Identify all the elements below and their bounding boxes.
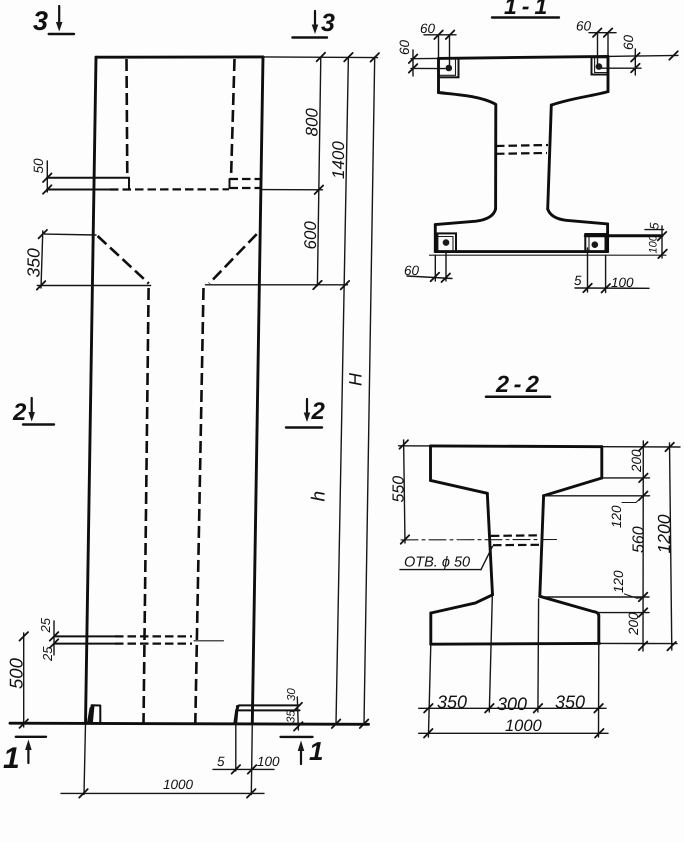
svg-text:1-1: 1-1 xyxy=(504,0,552,19)
svg-text:50: 50 xyxy=(31,158,46,174)
svg-text:35: 35 xyxy=(286,710,298,723)
svg-text:H: H xyxy=(346,372,366,386)
svg-text:5: 5 xyxy=(648,223,662,230)
svg-text:5: 5 xyxy=(574,273,582,288)
svg-text:350: 350 xyxy=(24,248,44,277)
svg-text:h: h xyxy=(309,491,330,502)
svg-text:25: 25 xyxy=(40,646,55,662)
svg-text:120: 120 xyxy=(609,505,624,528)
svg-text:60: 60 xyxy=(397,39,412,55)
svg-text:100: 100 xyxy=(611,275,634,290)
svg-text:1000: 1000 xyxy=(505,717,543,735)
svg-text:2-2: 2-2 xyxy=(495,371,543,397)
svg-text:120: 120 xyxy=(611,570,626,593)
svg-text:560: 560 xyxy=(631,526,648,553)
svg-text:1200: 1200 xyxy=(654,514,674,553)
svg-text:1400: 1400 xyxy=(329,141,348,179)
svg-text:300: 300 xyxy=(497,694,527,714)
svg-text:60: 60 xyxy=(420,21,436,36)
svg-text:1: 1 xyxy=(3,742,20,775)
svg-text:25: 25 xyxy=(38,617,53,633)
svg-text:350: 350 xyxy=(437,692,467,712)
svg-text:550: 550 xyxy=(391,476,408,503)
svg-text:ОТВ. ϕ 50: ОТВ. ϕ 50 xyxy=(404,555,470,571)
svg-text:3: 3 xyxy=(33,6,48,36)
svg-text:30: 30 xyxy=(286,688,298,701)
svg-text:100: 100 xyxy=(257,754,280,769)
svg-text:2: 2 xyxy=(12,399,27,426)
svg-text:200: 200 xyxy=(626,612,641,636)
svg-text:800: 800 xyxy=(303,108,322,137)
svg-text:1: 1 xyxy=(309,736,323,766)
svg-text:3: 3 xyxy=(321,9,335,37)
svg-text:5: 5 xyxy=(217,754,225,769)
svg-text:60: 60 xyxy=(576,19,592,34)
svg-text:500: 500 xyxy=(6,657,27,689)
svg-text:200: 200 xyxy=(629,449,644,473)
svg-text:2: 2 xyxy=(311,398,326,425)
svg-text:100: 100 xyxy=(648,234,660,253)
svg-text:60: 60 xyxy=(404,263,420,278)
svg-text:1000: 1000 xyxy=(163,777,194,792)
svg-text:60: 60 xyxy=(621,34,636,50)
svg-text:600: 600 xyxy=(301,221,320,250)
svg-text:350: 350 xyxy=(555,692,585,712)
